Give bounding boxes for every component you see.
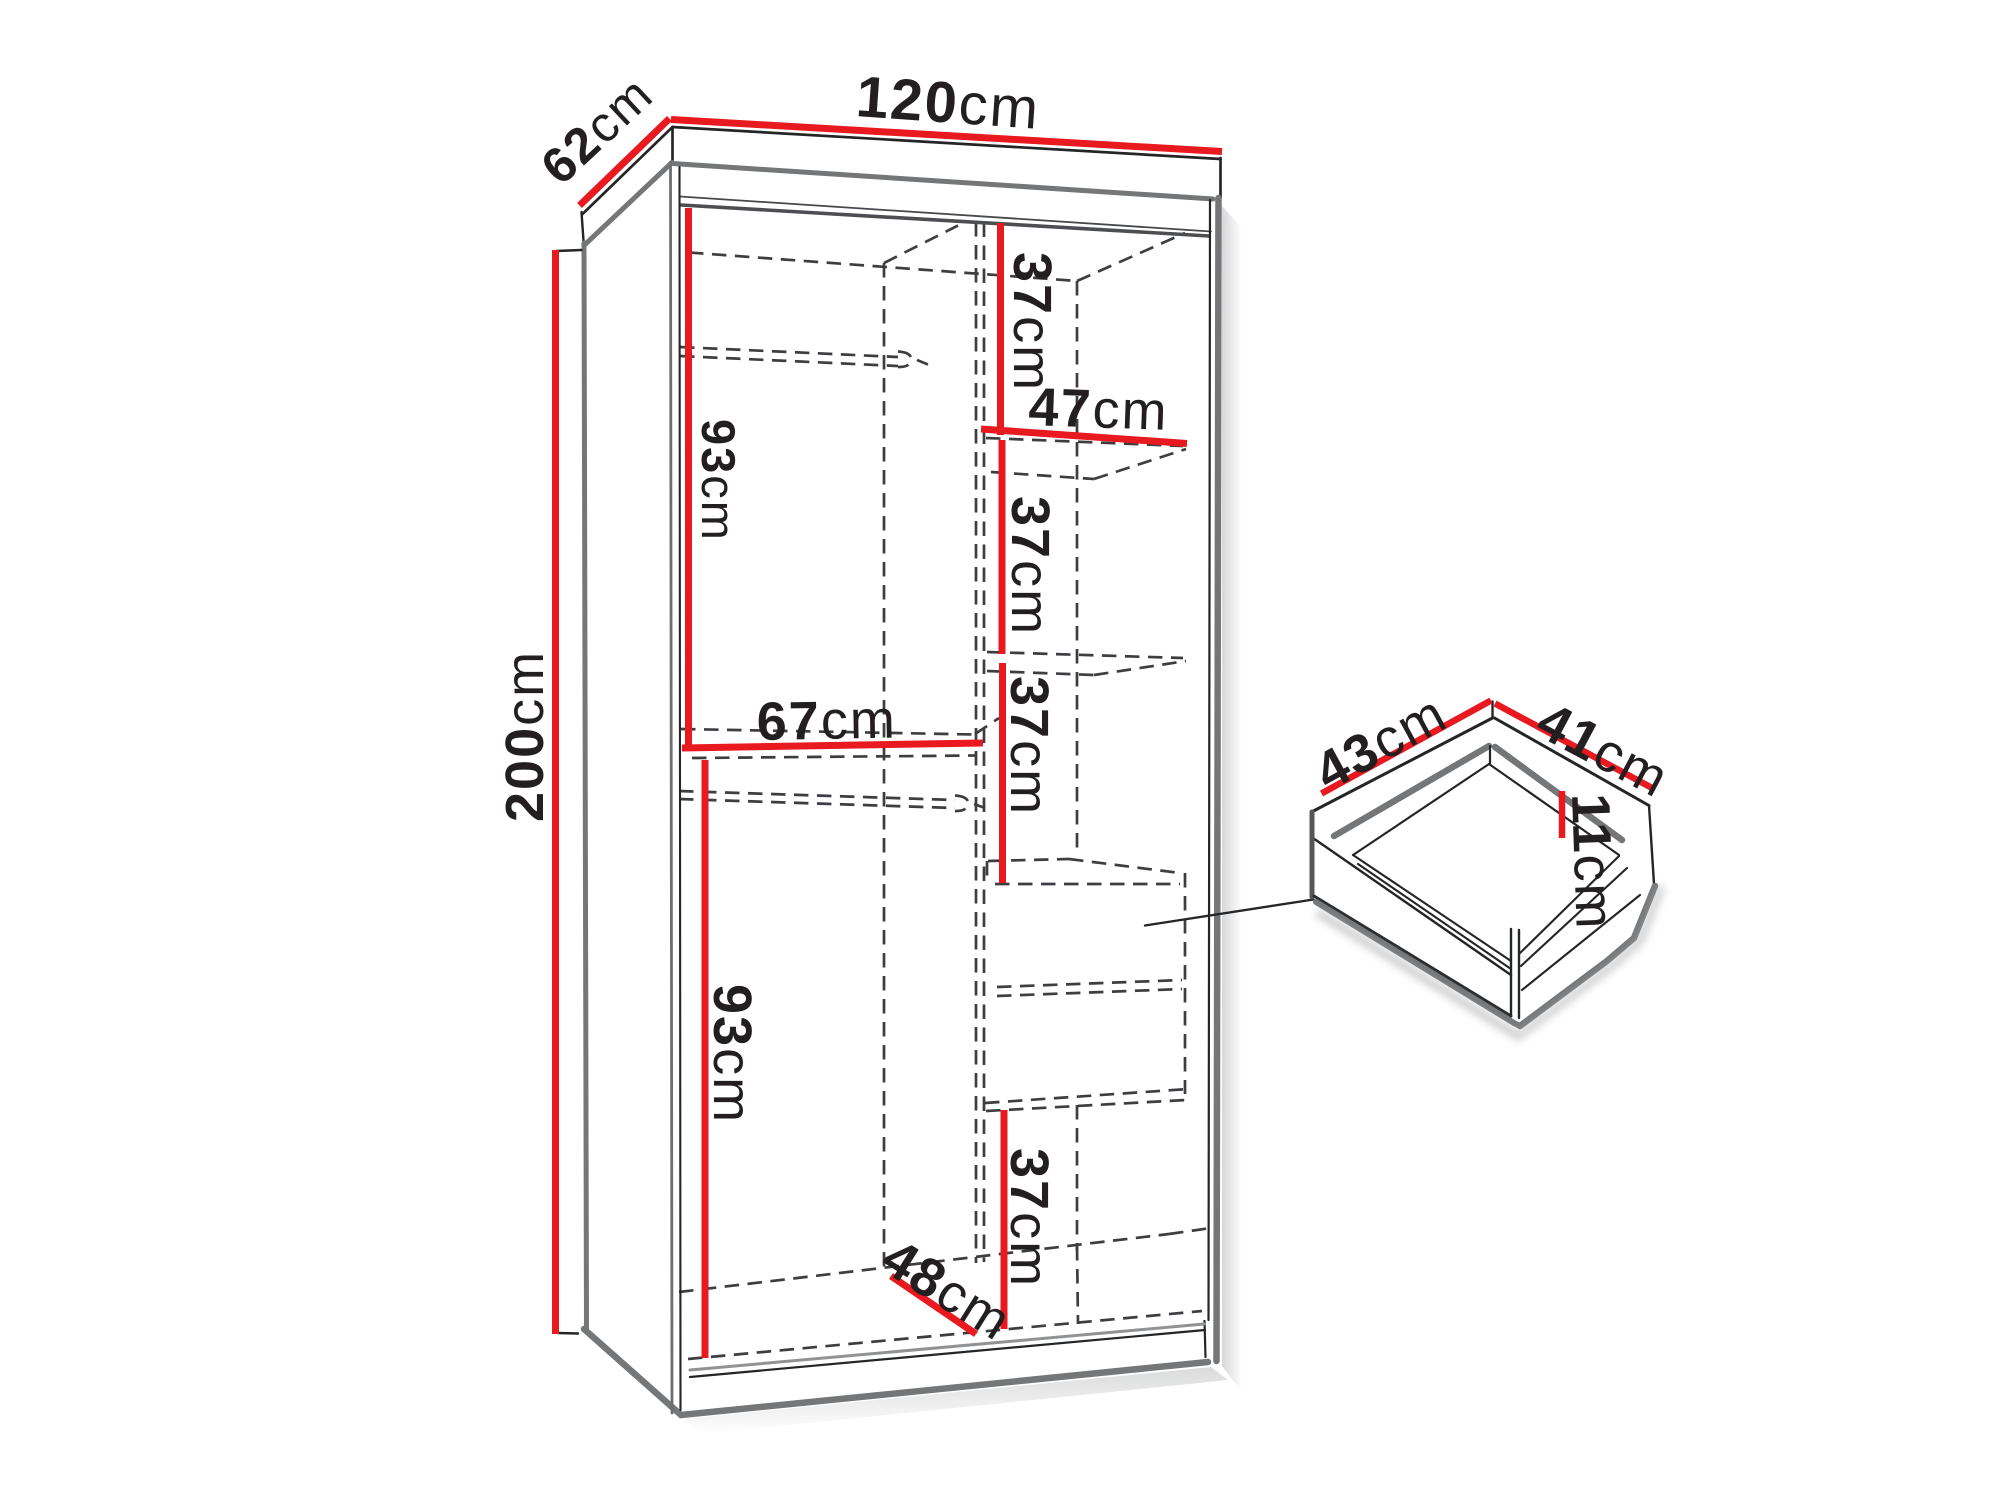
svg-text:37cm: 37cm [999, 1148, 1059, 1288]
svg-text:37cm: 37cm [1000, 496, 1060, 636]
svg-text:47cm: 47cm [1028, 377, 1170, 442]
svg-text:37cm: 37cm [999, 676, 1059, 816]
svg-text:93cm: 93cm [702, 984, 762, 1124]
svg-text:67cm: 67cm [756, 690, 897, 752]
svg-text:200cm: 200cm [495, 650, 555, 822]
svg-text:120cm: 120cm [854, 64, 1042, 142]
svg-text:37cm: 37cm [1002, 252, 1062, 392]
svg-text:11cm: 11cm [1560, 792, 1625, 931]
svg-text:93cm: 93cm [692, 419, 745, 542]
